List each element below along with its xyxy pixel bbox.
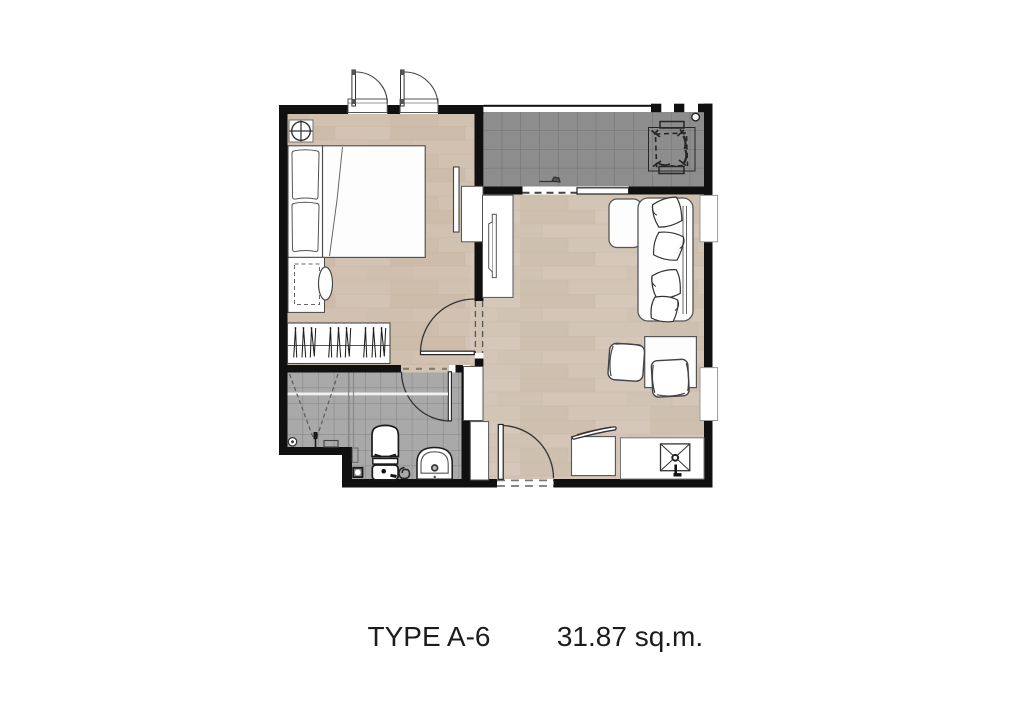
svg-text:TYPE A-6: TYPE A-6 (368, 621, 491, 652)
svg-text:31.87 sq.m.: 31.87 sq.m. (557, 621, 703, 652)
